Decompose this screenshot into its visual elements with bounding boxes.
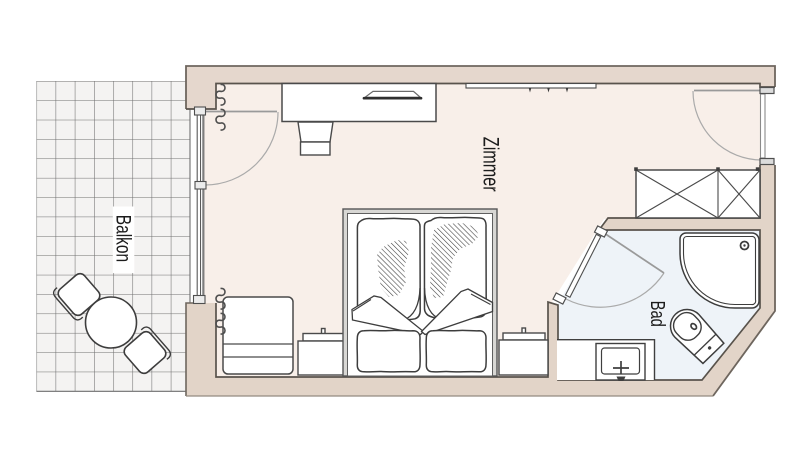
svg-text:Zimmer: Zimmer	[478, 137, 503, 192]
svg-text:Balkon: Balkon	[112, 215, 136, 262]
svg-text:Bad: Bad	[647, 301, 670, 327]
